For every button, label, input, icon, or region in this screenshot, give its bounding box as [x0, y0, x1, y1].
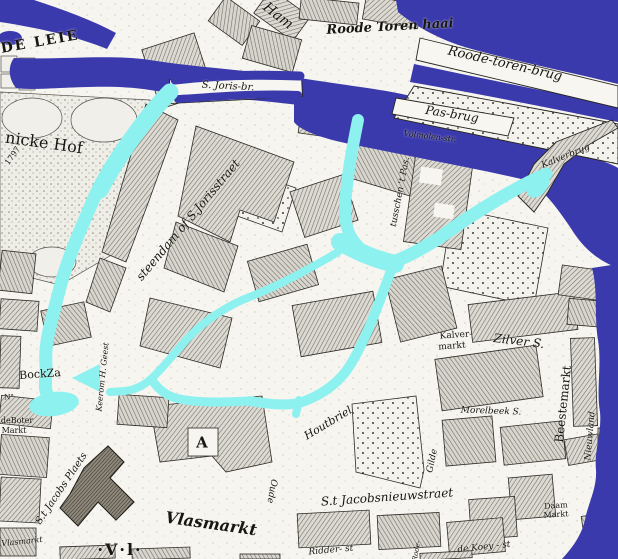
map-label-bockza: BockZa	[19, 367, 61, 381]
map-label-v-l-mark: ·V·l·	[97, 542, 142, 558]
map-label-deboter-markt: Markt	[2, 427, 27, 435]
map-label-no-mark: N°	[4, 395, 14, 402]
map-canvas	[0, 0, 618, 559]
map-label-kalver-markt-line2: markt	[438, 342, 466, 353]
map-label-deboter: deBoter	[1, 417, 33, 425]
historical-map[interactable]: DE LEIEHamRoode Toren haaiRoode-toren-br…	[0, 0, 618, 559]
map-label-block-a: A	[196, 436, 210, 451]
